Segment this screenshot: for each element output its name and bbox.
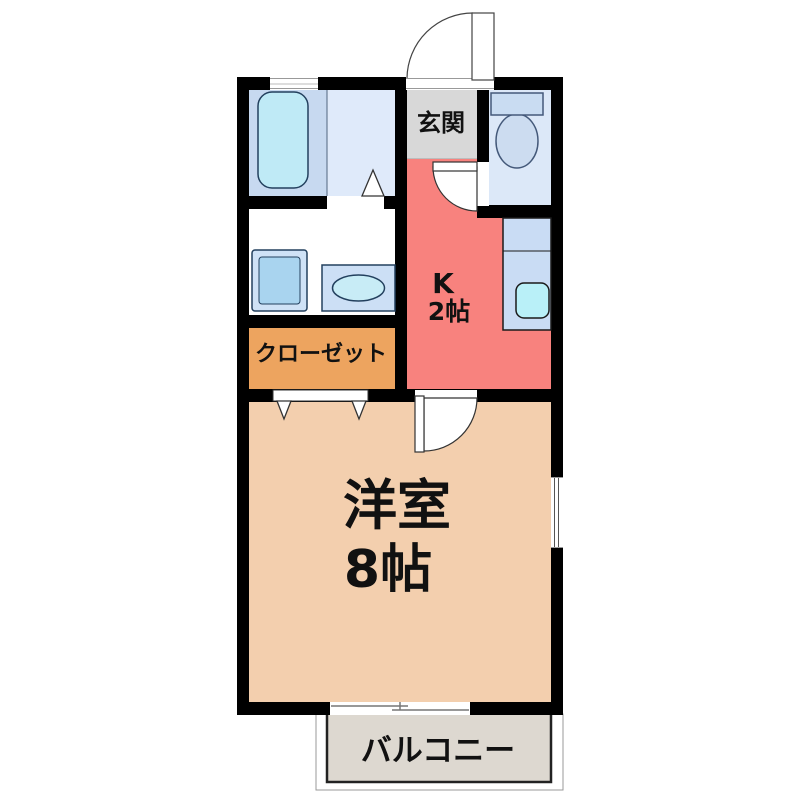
balcony-sliding-window — [330, 702, 470, 715]
balcony-label: バルコニー — [361, 733, 515, 769]
washing-machine-icon — [252, 250, 307, 311]
western-room-label: 洋室 — [343, 474, 451, 537]
wall-bath-kitchen — [395, 77, 407, 402]
kitchen-sink-icon — [503, 218, 551, 330]
wall-toilet-kitchen — [477, 205, 563, 218]
closet-label: クローゼット — [255, 342, 387, 367]
entrance-door-leaf — [472, 13, 494, 80]
bathroom-window — [270, 77, 318, 90]
bathtub-icon — [258, 92, 308, 188]
side-window — [551, 477, 563, 548]
room-door-leaf — [415, 396, 424, 452]
kitchen-label: K — [432, 267, 455, 300]
bathroom-door-opening — [327, 196, 384, 209]
western-room-size-label: 8帖 — [344, 540, 432, 600]
floor-plan-canvas: 玄関 K 2帖 クローゼット 洋室 8帖 バルコニー — [0, 0, 800, 800]
wash-basin-icon — [322, 265, 395, 311]
toilet-door-leaf — [433, 162, 477, 171]
bathroom-dry-zone-floor — [327, 90, 395, 196]
side-window-band — [551, 477, 563, 548]
floor-plan-drawing: 玄関 K 2帖 クローゼット 洋室 8帖 バルコニー — [0, 0, 800, 800]
wall-washroom-closet — [237, 315, 407, 328]
closet-door-band — [273, 390, 368, 401]
entrance-label: 玄関 — [417, 109, 465, 137]
kitchen-size-label: 2帖 — [428, 297, 470, 326]
toilet-door-opening — [477, 162, 489, 206]
